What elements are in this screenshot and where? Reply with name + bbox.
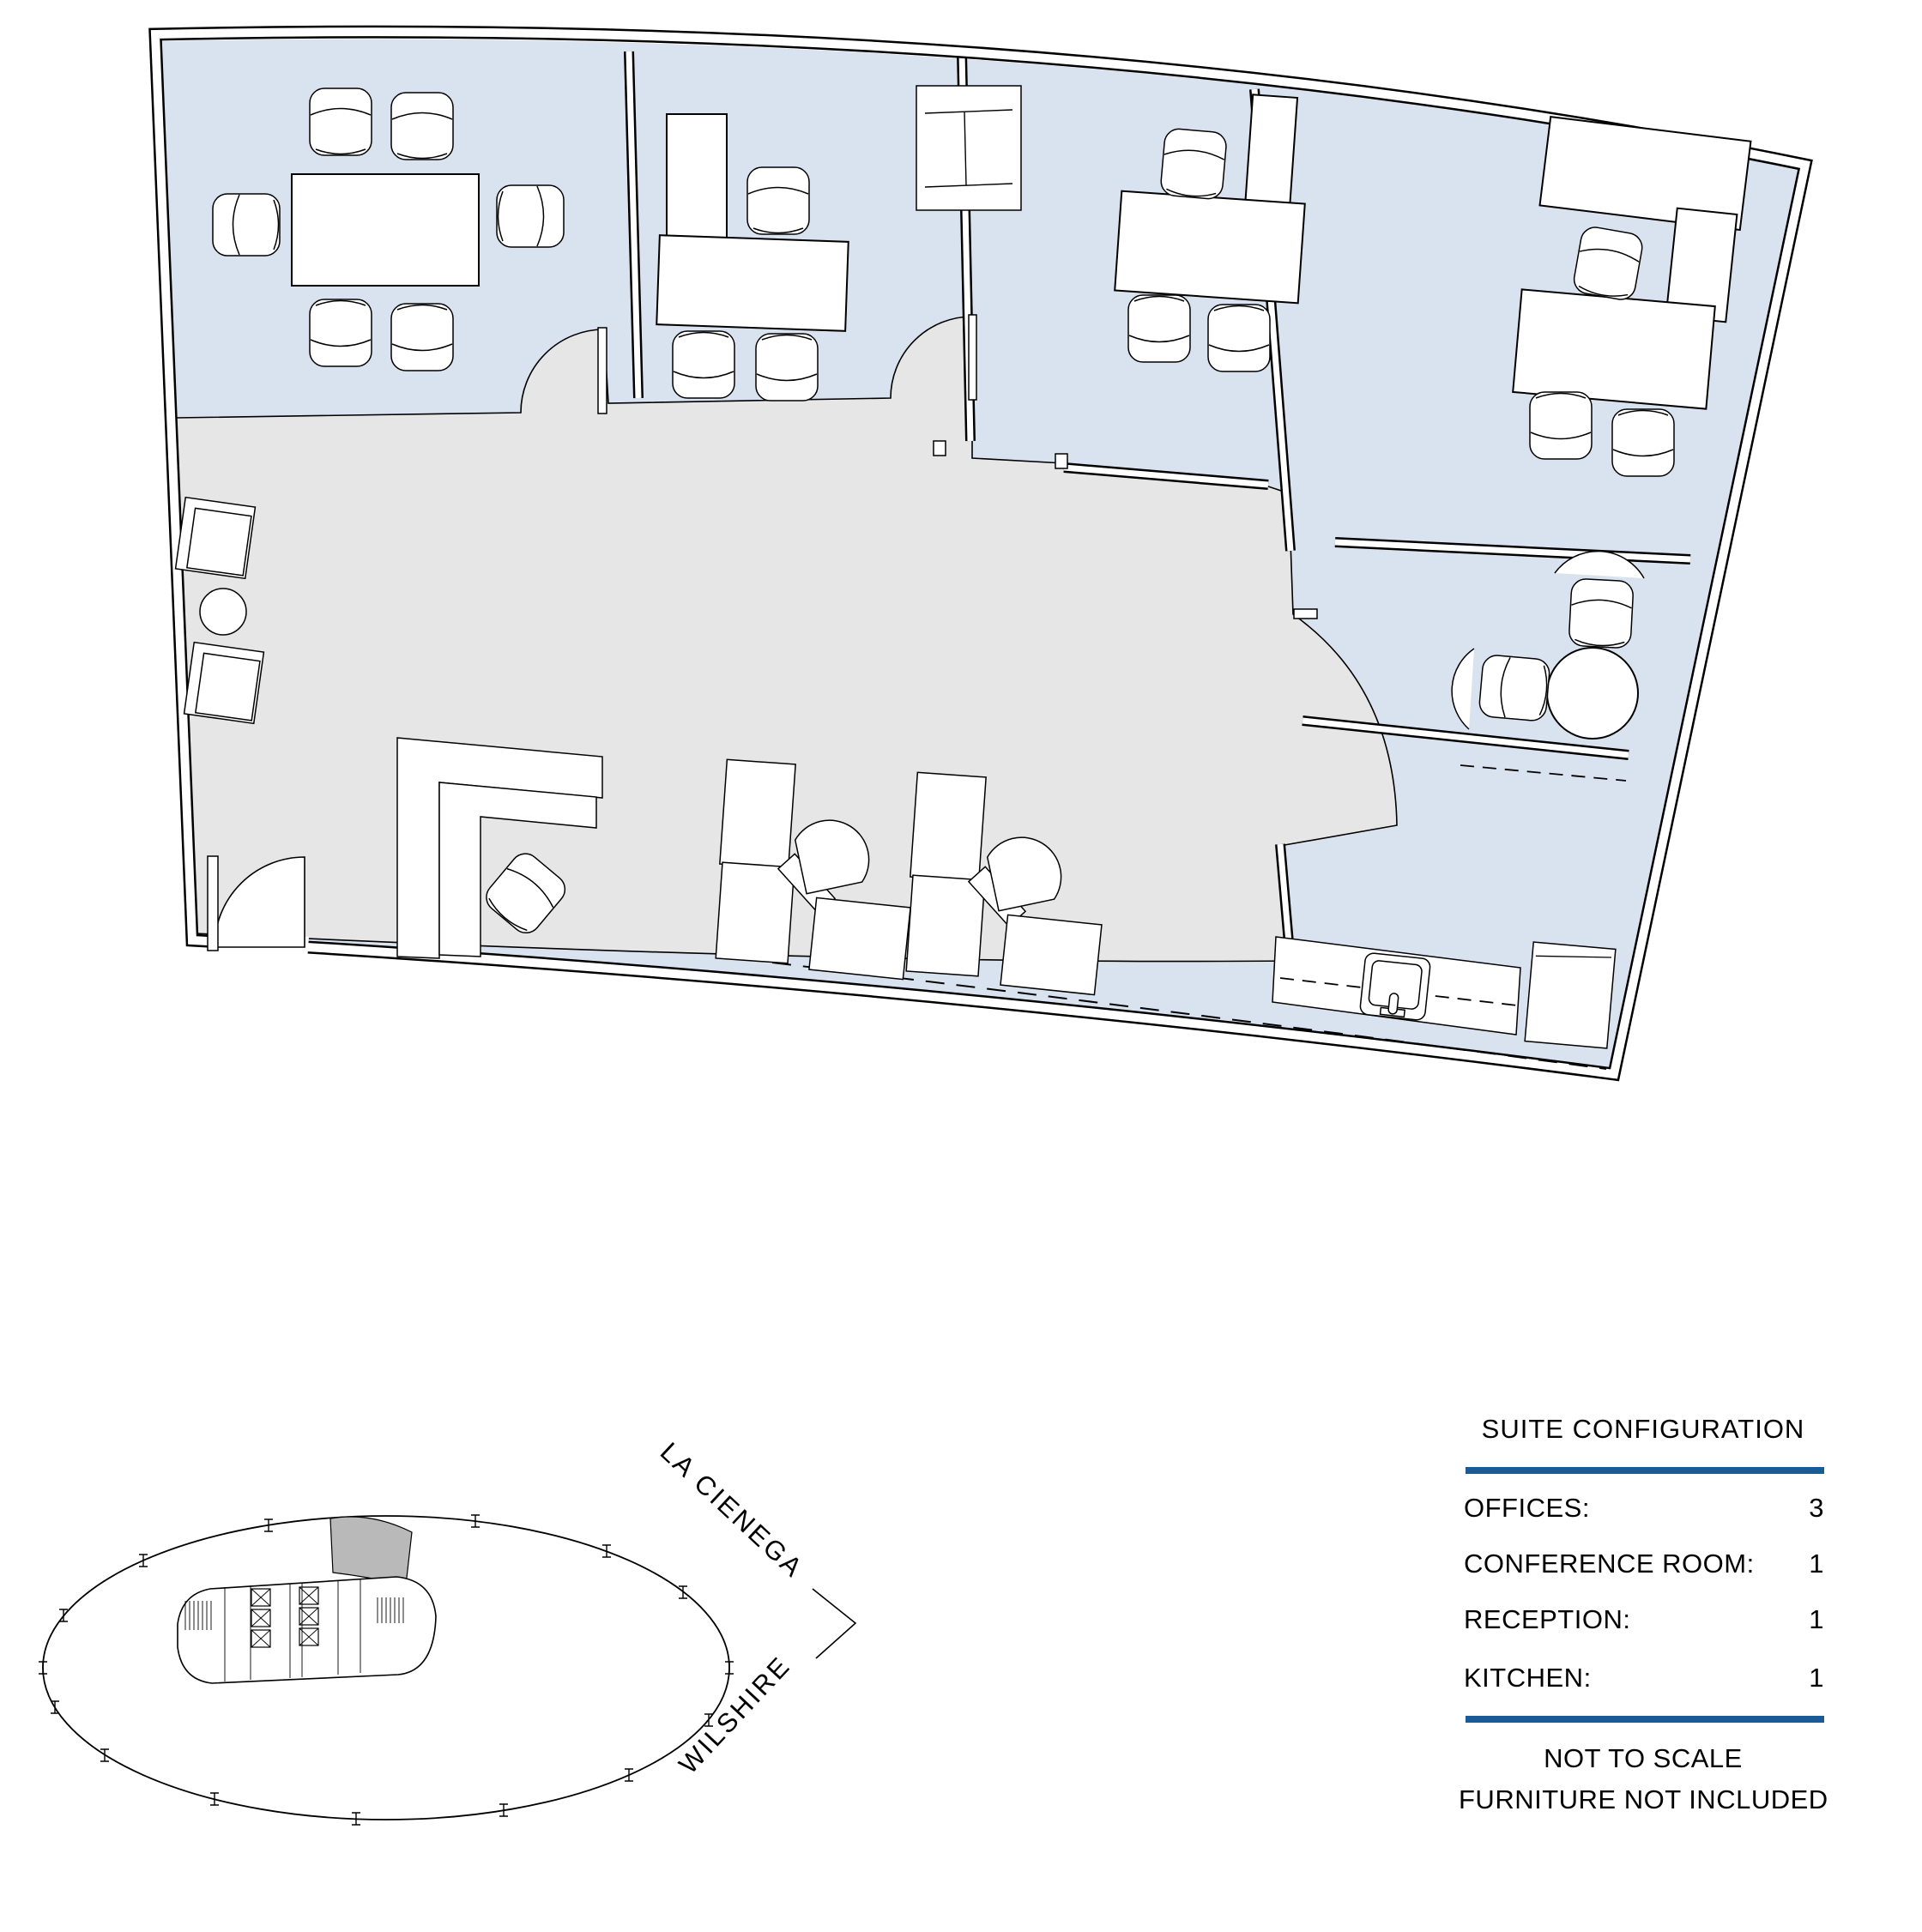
row-value: 1 [1809, 1604, 1824, 1635]
break-chair [1478, 655, 1550, 722]
conference-door-leaf [598, 328, 607, 414]
config-row-reception: RECEPTION: 1 [1464, 1604, 1824, 1635]
office3-guest-chair [1530, 392, 1592, 459]
office1-credenza [667, 114, 727, 240]
divider-rule [1466, 1467, 1824, 1474]
office2-desk-chair [1160, 128, 1228, 200]
street-label-la-cienega: LA CIENEGA [655, 1436, 810, 1584]
office3-guest-chair [1612, 409, 1674, 476]
note-furniture: FURNITURE NOT INCLUDED [1459, 1784, 1828, 1815]
office3-desk [1513, 289, 1715, 408]
office2-wall-table [916, 86, 1021, 210]
note-not-to-scale: NOT TO SCALE [1459, 1743, 1828, 1774]
divider-rule [1466, 1716, 1824, 1723]
street-corner-bracket [813, 1589, 855, 1658]
suite-configuration-panel: SUITE CONFIGURATION OFFICES: 3 CONFERENC… [1459, 1414, 1828, 1843]
kitchen-fridge [1525, 942, 1616, 1048]
office1-guest-chair [756, 334, 818, 401]
building-core [178, 1577, 436, 1683]
sink-faucet [1388, 993, 1399, 1014]
breakroom-door-leaf [1294, 609, 1317, 619]
lounge-chair [184, 643, 264, 724]
row-value: 1 [1809, 1663, 1824, 1694]
config-row-kitchen: KITCHEN: 1 [1464, 1663, 1824, 1694]
lounge-chair [176, 498, 256, 579]
conference-chair [497, 185, 564, 247]
row-label: RECEPTION: [1464, 1604, 1630, 1635]
row-label: CONFERENCE ROOM: [1464, 1549, 1755, 1579]
office3-desk-chair [1572, 225, 1644, 301]
row-label: KITCHEN: [1464, 1663, 1592, 1694]
conference-chair [310, 299, 372, 366]
break-table [1547, 648, 1638, 739]
row-value: 1 [1809, 1549, 1824, 1579]
conference-chair [391, 93, 453, 160]
office2-guest-chair [1128, 295, 1190, 362]
office1-door-leaf [969, 315, 976, 400]
office2-desk [1115, 191, 1305, 304]
kitchen-sink [1359, 952, 1430, 1021]
entry-door-leaf [208, 856, 218, 951]
conference-chair [391, 304, 453, 371]
office2-guest-chair [1208, 305, 1270, 371]
row-label: OFFICES: [1464, 1493, 1590, 1524]
row-value: 3 [1809, 1493, 1824, 1524]
floorplan-sheet: { "colors": { "room_fill": "#d9e2ef", "l… [0, 0, 1922, 1932]
door-jamb [934, 441, 946, 456]
office1-desk [656, 235, 848, 331]
office1-desk-chair [747, 167, 809, 234]
config-row-offices: OFFICES: 3 [1464, 1493, 1824, 1524]
panel-title: SUITE CONFIGURATION [1459, 1414, 1828, 1445]
side-table [200, 589, 246, 635]
door-jamb [1055, 454, 1067, 468]
conference-table [292, 174, 479, 286]
key-plan: LA CIENEGA WILSHIRE [39, 1436, 855, 1825]
office1-guest-chair [673, 331, 734, 398]
conference-chair [310, 88, 372, 155]
conference-chair [213, 194, 280, 256]
suite-plan [155, 32, 1805, 1074]
config-row-conference-room: CONFERENCE ROOM: 1 [1464, 1549, 1824, 1579]
break-chair [1568, 578, 1634, 649]
